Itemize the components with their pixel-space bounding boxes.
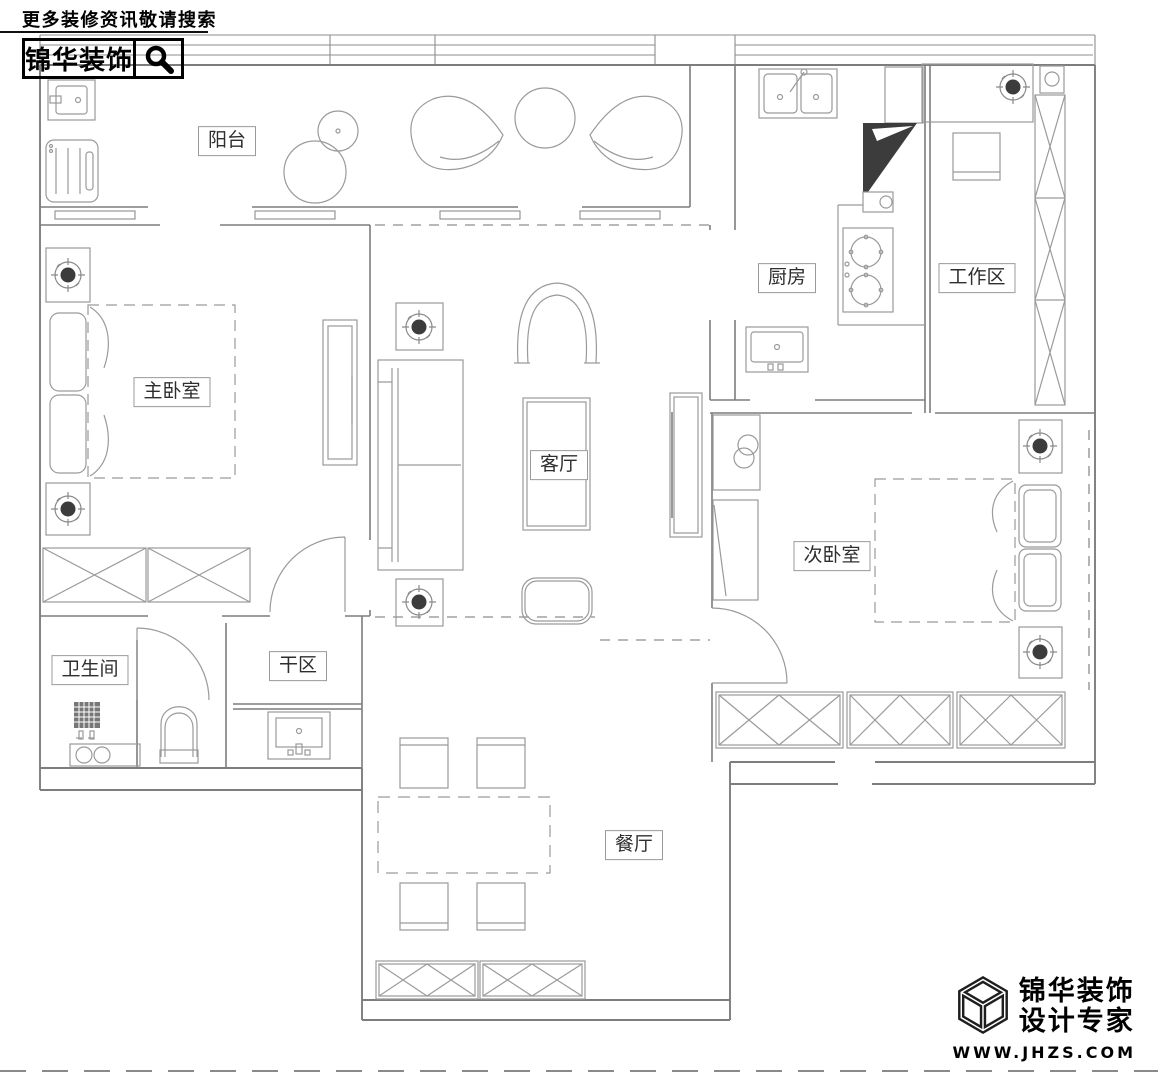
burner xyxy=(851,275,881,305)
dry-area-sink xyxy=(268,712,330,759)
room-label-balcony: 阳台 xyxy=(198,126,256,156)
bathroom-fixtures xyxy=(70,702,198,766)
second-bedroom-door xyxy=(712,608,787,683)
tagline-underline xyxy=(0,31,208,33)
isometric-cube-icon xyxy=(954,974,1012,1040)
sideboard xyxy=(480,961,585,999)
balcony-furniture xyxy=(46,80,682,203)
work-area-furniture xyxy=(922,64,1065,405)
search-icon xyxy=(136,41,181,76)
leaf-chair xyxy=(411,96,503,169)
second-bedroom-furniture xyxy=(713,415,1065,748)
wardrobe xyxy=(957,692,1065,748)
shower-drain xyxy=(74,702,100,728)
washing-machine xyxy=(46,140,98,202)
pillow xyxy=(1019,485,1061,547)
room-label-dining-room: 餐厅 xyxy=(605,830,663,860)
room-label-dry-area: 干区 xyxy=(269,651,327,681)
wardrobe xyxy=(716,692,843,748)
room-label-work-area: 工作区 xyxy=(938,263,1015,293)
doors xyxy=(137,537,787,700)
pillow xyxy=(1019,549,1061,611)
dining-furniture xyxy=(376,738,585,999)
exterior-walls xyxy=(40,65,1095,1020)
footer-brand-name: 锦华装饰 xyxy=(1019,977,1135,1007)
work-table xyxy=(953,133,1000,180)
dining-table xyxy=(378,797,550,873)
footer-slogan: 设计专家 xyxy=(1019,1007,1135,1037)
dry-area-fixtures xyxy=(268,712,330,759)
bottom-dashed-line xyxy=(0,1070,1158,1072)
bathroom-door xyxy=(137,628,209,700)
header-logo: 锦华装饰 xyxy=(22,38,184,79)
footer-logo: 锦华装饰 设计专家 WWW.JHZS.COM xyxy=(952,974,1136,1062)
room-label-living-room: 客厅 xyxy=(530,450,588,480)
room-label-second-bedroom: 次卧室 xyxy=(793,541,870,571)
master-bedroom-furniture xyxy=(43,248,357,602)
pillow xyxy=(50,395,86,473)
header-brand: 锦华装饰 xyxy=(25,41,133,76)
double-sink xyxy=(759,69,837,118)
master-bedroom-door xyxy=(270,537,345,612)
balcony-table xyxy=(515,88,575,148)
floorplan-page: 阳台 主卧室 客厅 厨房 工作区 次卧室 卫生间 干区 餐厅 更多装修资讯敬请搜… xyxy=(0,0,1158,1074)
floorplan-drawing xyxy=(0,0,1158,1074)
stove xyxy=(843,228,893,312)
sideboard xyxy=(376,961,478,999)
leaf-chair xyxy=(590,96,682,169)
kitchen-furniture xyxy=(746,67,925,372)
header-tagline: 更多装修资讯敬请搜索 xyxy=(22,6,217,32)
fridge xyxy=(885,67,923,123)
burner xyxy=(851,237,881,267)
wardrobe xyxy=(847,692,953,748)
footer-website: WWW.JHZS.COM xyxy=(952,1043,1136,1062)
room-label-master-bedroom: 主卧室 xyxy=(133,377,210,407)
wall-openings xyxy=(375,225,1089,690)
pillow xyxy=(50,313,86,391)
downlight-symbols xyxy=(51,70,1057,669)
plant xyxy=(284,141,346,203)
room-label-bathroom: 卫生间 xyxy=(51,655,128,685)
plant xyxy=(318,111,358,151)
room-label-kitchen: 厨房 xyxy=(758,263,816,293)
tv-cabinet xyxy=(670,393,702,537)
